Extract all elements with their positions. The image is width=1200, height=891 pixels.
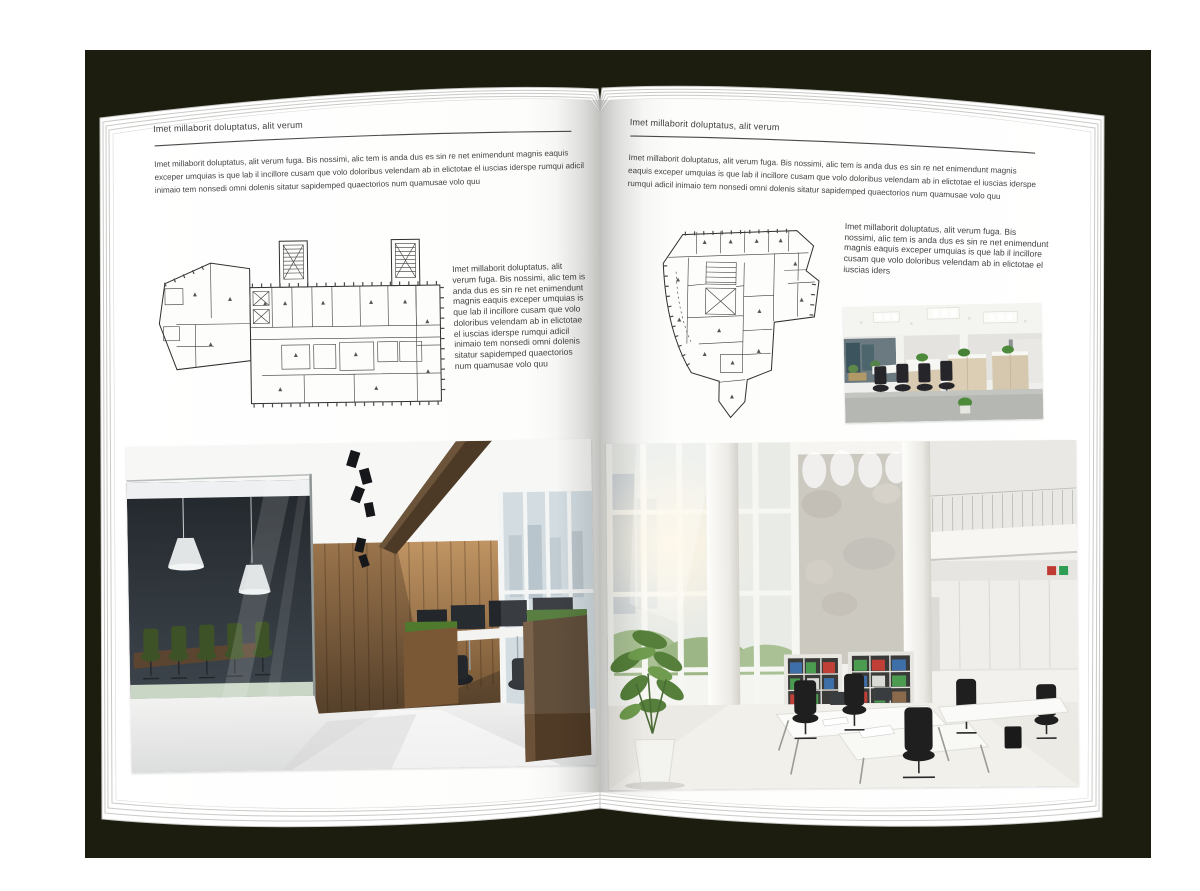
right-small-office-photo <box>843 303 1043 423</box>
window-glare <box>499 491 596 715</box>
safety-sign <box>1059 566 1068 575</box>
plan-outer-walls <box>158 239 441 405</box>
left-floor-plan <box>152 223 449 415</box>
left-office-photo <box>126 439 597 773</box>
left-page-side-paragraph: Imet millaborit doluptatus, alit verum f… <box>452 260 589 372</box>
floor-carpet <box>845 389 1044 423</box>
waste-bin <box>1004 726 1021 748</box>
right-floor-plan <box>646 221 835 422</box>
right-office-photo <box>606 440 1079 790</box>
left-window-wall <box>606 442 802 708</box>
left-page-text-block: Imet millaborit doluptatus, alit verum I… <box>153 112 593 198</box>
first-aid-sign <box>1047 566 1056 575</box>
magazine-mockup-canvas: Imet millaborit doluptatus, alit verum I… <box>0 0 1200 891</box>
right-page-text-block: Imet millaborit doluptatus, alit verum I… <box>627 117 1043 205</box>
right-page-side-paragraph: Imet millaborit doluptatus, alit verum f… <box>843 221 1050 281</box>
left-column <box>706 443 740 707</box>
